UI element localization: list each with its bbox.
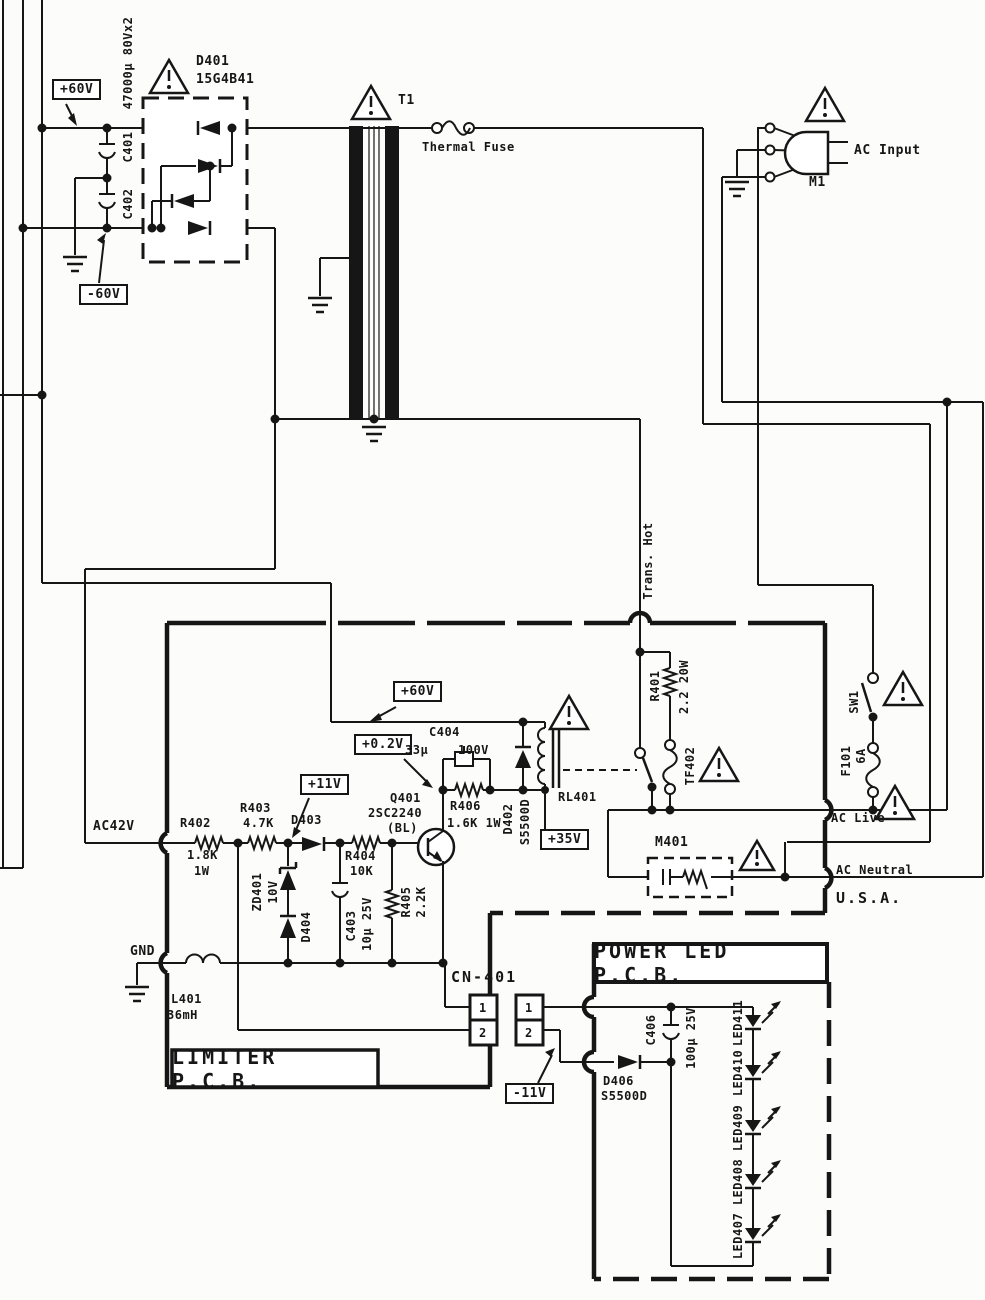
label-trans-hot: Trans. Hot [641,522,655,599]
label-c406-value: 100µ 25V [684,1007,698,1069]
label-d406-value: S5500D [601,1089,647,1103]
voltage-badge-minus60: -60V [79,284,128,305]
label-l401: L401 [171,992,202,1006]
schematic-linework [0,0,985,1300]
label-c403: C403 [344,911,358,942]
bridge-rectifier-d401 [143,98,247,262]
label-d403: D403 [291,813,322,827]
label-c404-v2: 100V [458,743,489,757]
label-d406: D406 [603,1074,634,1088]
warning-icons [150,60,922,870]
label-c402: C402 [121,189,135,220]
power-led-pcb-title: POWER LED P.C.B. [594,944,827,982]
warning-icon [150,60,188,93]
label-led408: LED408 [731,1159,745,1205]
label-q401-grade: (BL) [387,821,418,835]
label-r402-v1: 1.8K [187,848,218,862]
label-ac42v: AC42V [93,819,135,834]
label-r403: R403 [240,801,271,815]
label-c403-value: 10µ 25V [360,897,374,951]
label-m1: M1 [809,175,826,190]
label-ac-live: AC Live [831,811,885,825]
label-r402-v2: 1W [194,864,209,878]
label-r402: R402 [180,816,211,830]
power-led-pcb [584,944,829,1279]
label-c401: C401 [121,132,135,163]
voltage-badge-plus60-inner: +60V [393,681,442,702]
label-zd401: ZD401 [250,873,264,912]
label-c404-v1: 33µ [405,743,428,757]
label-q401-part: 2SC2240 [368,806,422,820]
ac-live-neutral [608,810,983,897]
sw1-f101 [862,585,880,810]
junction-dots [19,124,952,1067]
label-ac-input: AC Input [854,143,921,158]
label-led407: LED407 [731,1213,745,1259]
label-c401-value: 47000µ 80Vx2 [121,17,135,110]
label-f101: F101 [839,746,853,777]
connector-pin-1: 1 [525,1001,533,1015]
label-c404: C404 [429,725,460,739]
warning-icon [700,748,738,781]
limiter-pcb-title: LIMITER P.C.B. [172,1050,378,1087]
transformer-t1 [275,126,640,441]
ac-input-m1 [722,124,848,586]
connector-pin-2: 2 [479,1026,487,1040]
label-d401-value: 15G4B41 [196,72,254,87]
label-cn401: CN-401 [451,968,517,986]
warning-icon [550,696,588,729]
label-rl401: RL401 [558,790,597,804]
voltage-badge-plus02: +0.2V [354,734,412,755]
label-led409: LED409 [731,1105,745,1151]
led-symbols [745,1001,781,1242]
label-thermal-fuse: Thermal Fuse [422,140,515,154]
label-d402-value: S5500D [518,799,532,845]
warning-icon [352,86,390,119]
connector-pin-2: 2 [525,1026,533,1040]
label-led411: LED411 [731,1000,745,1046]
label-m401: M401 [655,835,688,850]
label-r405-value: 2.2K [414,887,428,918]
label-f101-value: 6A [854,748,868,763]
label-r406: R406 [450,799,481,813]
label-r403-value: 4.7K [243,816,274,830]
warning-icon [884,672,922,705]
label-tf402: TF402 [683,747,697,786]
label-r401-value: 2.2 20W [677,660,691,714]
label-r401: R401 [648,671,662,702]
label-l401-value: 36mH [167,1008,198,1022]
label-d402: D402 [501,804,515,835]
label-c406: C406 [644,1015,658,1046]
label-led410: LED410 [731,1050,745,1096]
voltage-badge-plus35: +35V [540,829,589,850]
warning-icon [740,841,774,870]
label-d404: D404 [299,912,313,943]
warning-icon [806,88,844,121]
label-gnd: GND [130,944,155,959]
label-sw1: SW1 [847,690,861,713]
schematic-page: +60V -60V 47000µ 80Vx2 C401 C402 D401 15… [0,0,985,1300]
thermal-fuse [432,121,474,135]
label-r404-value: 10K [350,864,373,878]
label-r404: R404 [345,849,376,863]
label-q401: Q401 [390,791,421,805]
voltage-badge-plus60-top: +60V [52,79,101,100]
label-usa: U.S.A. [836,889,902,907]
label-zd401-value: 10V [266,880,280,903]
label-ac-neutral: AC Neutral [836,863,913,877]
label-d401: D401 [196,54,229,69]
label-t1: T1 [398,93,415,108]
label-r405: R405 [399,887,413,918]
voltage-badge-plus11: +11V [300,774,349,795]
voltage-badge-minus11: -11V [505,1083,554,1104]
connector-pin-1: 1 [479,1001,487,1015]
label-r406-value: 1.6K 1W [447,816,501,830]
